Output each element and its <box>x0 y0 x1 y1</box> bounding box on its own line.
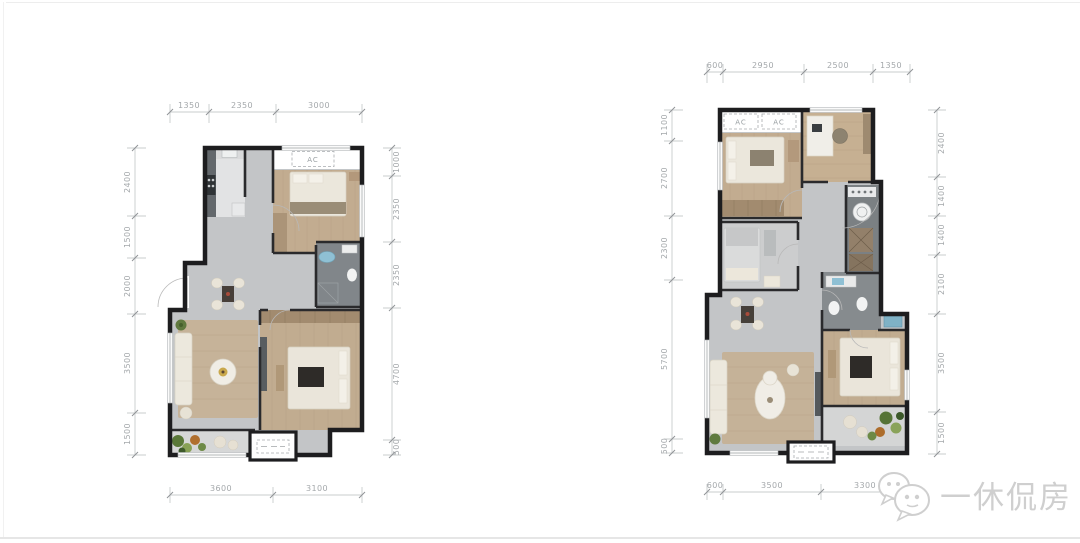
dim-label: 2400 <box>123 171 132 193</box>
dim-label: 3500 <box>123 352 132 374</box>
laptop-icon <box>812 124 822 132</box>
balcony-area <box>822 406 907 446</box>
bedroom2-area <box>273 170 362 253</box>
chair-icon <box>833 129 848 144</box>
watermark: 一休侃房 <box>872 458 1077 530</box>
dim-label: 1500 <box>937 422 946 444</box>
dresser-icon <box>788 140 799 162</box>
dim-label: 600 <box>707 61 723 70</box>
dim-label: 2350 <box>231 101 253 110</box>
dim-label: 2350 <box>392 264 401 286</box>
bench-icon <box>276 365 284 391</box>
balcony-area <box>170 430 255 455</box>
dim-chain-bottom: 3600 3100 <box>167 484 365 503</box>
dim-label: 600 <box>707 481 723 490</box>
living-area <box>710 352 823 445</box>
wardrobe-icon <box>722 200 784 216</box>
dim-label: 1350 <box>178 101 200 110</box>
dim-chain-left: 1100 2700 2300 5700 500 <box>660 107 683 456</box>
dim-chain-top: 600 2950 2500 1350 <box>704 61 913 83</box>
page-border-top <box>6 2 1080 3</box>
watermark-text: 一休侃房 <box>940 472 1072 517</box>
dim-label: 2700 <box>660 167 669 189</box>
dim-label: 5700 <box>660 348 669 370</box>
floor-plan-left: 1350 2350 3000 2400 1500 2000 3500 1500 … <box>120 85 410 505</box>
dim-label: 1400 <box>937 224 946 246</box>
dim-label: 1500 <box>123 423 132 445</box>
master-bedroom-area <box>822 330 907 406</box>
bed-icon <box>290 172 346 216</box>
bathtub-icon <box>319 252 335 263</box>
dim-chain-right: 1000 2350 2350 4700 500 <box>383 145 401 458</box>
dim-chain-left: 2400 1500 2000 3500 1500 <box>123 145 146 458</box>
stove-icon <box>207 175 216 195</box>
dim-label: 1500 <box>123 226 132 248</box>
dim-label: 3500 <box>761 481 783 490</box>
floor-plan-right: 600 2950 2500 1350 1100 2700 2300 5700 5… <box>650 40 970 520</box>
dim-label: 2100 <box>937 273 946 295</box>
dim-label: 3600 <box>210 484 232 493</box>
kitchen-area <box>205 148 245 217</box>
ac-label: AC <box>735 119 747 127</box>
dim-label: 2300 <box>660 237 669 259</box>
toilet-icon <box>857 297 868 311</box>
bathroom-area <box>822 272 902 330</box>
dim-label: 3500 <box>937 352 946 374</box>
dim-label: 2350 <box>392 198 401 220</box>
dim-label: 2400 <box>937 132 946 154</box>
bedroom1-area <box>720 133 802 218</box>
ac-label: AC <box>307 156 319 164</box>
dim-chain-top: 1350 2350 3000 <box>167 101 365 123</box>
bed-icon <box>840 338 900 396</box>
fridge-icon <box>232 203 245 216</box>
dim-label: 1000 <box>392 151 401 173</box>
pouf-icon <box>214 436 226 448</box>
dim-label: 1350 <box>880 61 902 70</box>
dim-label: 3100 <box>306 484 328 493</box>
bedroom2-area <box>720 222 798 290</box>
desk-icon <box>807 116 833 156</box>
desk-icon <box>764 230 776 256</box>
bed-icon <box>726 137 784 183</box>
sink-icon <box>222 150 237 158</box>
laundry-sink-icon <box>884 316 902 327</box>
side-table-icon <box>787 364 799 376</box>
sofa-icon <box>175 333 192 405</box>
coffee-table-icon <box>210 359 236 385</box>
study-area <box>803 110 873 182</box>
kitchen-area <box>846 185 881 273</box>
ottoman-icon <box>764 276 780 287</box>
dim-label: 1100 <box>660 114 669 136</box>
master-bedroom-area <box>260 310 362 430</box>
wardrobe-icon <box>273 213 287 253</box>
dim-label: 1400 <box>937 185 946 207</box>
washer-icon <box>853 203 871 221</box>
ac-platform: AC AC <box>720 110 802 133</box>
wechat-bubbles-icon <box>872 464 934 524</box>
dim-label: 3000 <box>308 101 330 110</box>
ac-label: AC <box>773 119 785 127</box>
living-area <box>175 320 258 420</box>
dim-label: 4700 <box>392 363 401 385</box>
dim-label: 2950 <box>752 61 774 70</box>
toilet-icon <box>347 269 357 282</box>
entry-stoop <box>788 442 834 462</box>
plan-body-left: AC <box>158 146 365 461</box>
page-border-bottom <box>0 537 1080 539</box>
toilet-icon <box>829 301 840 315</box>
sofa-icon <box>710 360 727 434</box>
bath-sink-icon <box>342 245 357 253</box>
bench-icon <box>828 350 836 378</box>
pouf-icon <box>844 416 857 429</box>
bed-icon <box>724 228 760 282</box>
plan-body-right: AC AC <box>705 108 910 463</box>
dim-chain-right: 2400 1400 1400 2100 3500 1500 <box>928 107 946 457</box>
dim-label: 500 <box>660 438 669 454</box>
entry-stoop <box>250 432 296 460</box>
pouf-icon <box>857 427 868 438</box>
dim-label: 500 <box>392 439 401 455</box>
ac-platform: AC <box>273 148 362 170</box>
floorplan-page: 1350 2350 3000 2400 1500 2000 3500 1500 … <box>0 0 1080 543</box>
pouf-icon <box>228 440 238 450</box>
dim-label: 2000 <box>123 275 132 297</box>
nightstand-icon <box>349 172 360 181</box>
page-border-left <box>3 2 4 537</box>
plant-icon <box>710 434 721 445</box>
bookshelf-icon <box>863 114 871 154</box>
dim-label: 2500 <box>827 61 849 70</box>
bed-icon <box>288 347 350 409</box>
bathroom-area <box>316 242 362 307</box>
pouf-icon <box>180 407 192 419</box>
